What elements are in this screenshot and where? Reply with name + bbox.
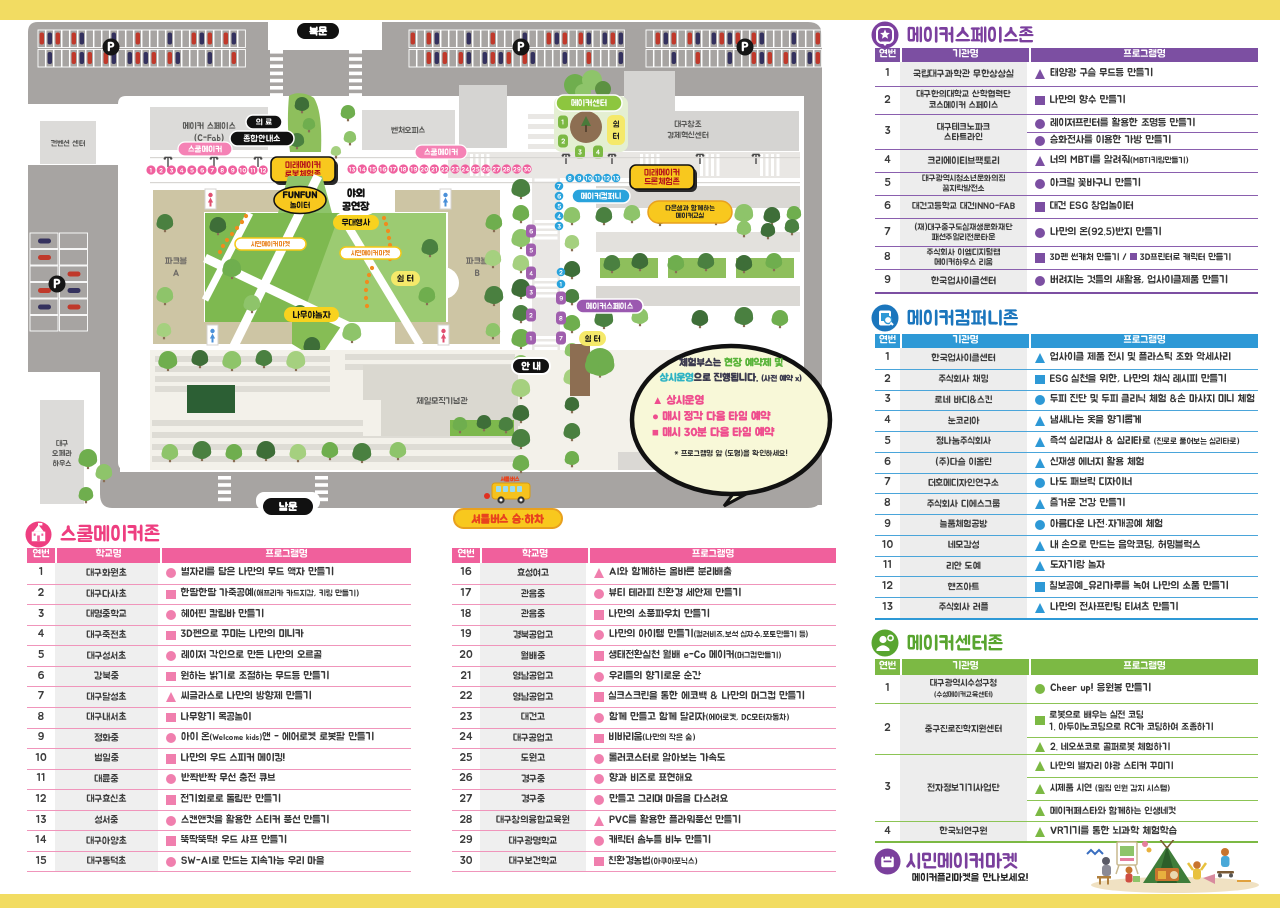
- svg-text:23: 23: [450, 167, 458, 173]
- svg-text:FUNFUN: FUNFUN: [283, 190, 319, 200]
- svg-text:21: 21: [430, 167, 437, 173]
- svg-text:18: 18: [400, 166, 407, 173]
- svg-text:4: 4: [595, 150, 600, 157]
- svg-text:● 매시 정각 다음 타임 예약: ● 매시 정각 다음 타임 예약: [652, 410, 771, 423]
- svg-text:8: 8: [559, 315, 563, 322]
- svg-text:메이커교실: 메이커교실: [676, 212, 705, 220]
- svg-text:12: 12: [604, 176, 611, 182]
- svg-text:2: 2: [528, 313, 533, 319]
- svg-text:다은샘과 함께하는: 다은샘과 함께하는: [664, 204, 715, 213]
- svg-text:메이커 스페이스: 메이커 스페이스: [182, 121, 236, 131]
- svg-text:14: 14: [359, 167, 366, 173]
- svg-text:시민메이커마켓: 시민메이커마켓: [251, 241, 291, 249]
- svg-text:종합안내소: 종합안내소: [244, 134, 281, 144]
- svg-text:12: 12: [260, 168, 267, 174]
- svg-text:벤처오피스: 벤처오피스: [391, 125, 426, 135]
- svg-text:공연장: 공연장: [341, 201, 370, 213]
- svg-text:10: 10: [585, 176, 592, 182]
- svg-text:하우스: 하우스: [51, 459, 71, 468]
- svg-text:체험부스는 현장 예약제 및: 체험부스는 현장 예약제 및: [679, 357, 783, 369]
- svg-text:1: 1: [561, 120, 565, 127]
- svg-text:2: 2: [558, 270, 563, 276]
- svg-text:야외: 야외: [347, 187, 366, 200]
- svg-text:시민메이커마켓: 시민메이커마켓: [351, 250, 391, 258]
- svg-text:17: 17: [390, 167, 397, 173]
- svg-text:27: 27: [491, 167, 500, 173]
- svg-text:3: 3: [169, 168, 174, 174]
- svg-text:쉼 터: 쉼 터: [397, 274, 415, 284]
- svg-text:10: 10: [239, 168, 246, 174]
- svg-text:22: 22: [440, 167, 449, 173]
- svg-text:대구창조: 대구창조: [673, 120, 702, 129]
- svg-text:P: P: [741, 41, 749, 54]
- svg-text:8: 8: [221, 167, 225, 174]
- svg-text:P: P: [53, 278, 61, 291]
- svg-text:스쿨메이커: 스쿨메이커: [424, 148, 458, 157]
- svg-text:경제혁신센터: 경제혁신센터: [667, 131, 709, 140]
- svg-text:쉼: 쉼: [613, 120, 620, 129]
- svg-text:2: 2: [158, 168, 163, 174]
- svg-text:5: 5: [529, 248, 533, 254]
- svg-text:나무야놀자: 나무야놀자: [292, 310, 331, 320]
- svg-text:3: 3: [578, 150, 582, 157]
- svg-text:11: 11: [595, 176, 600, 182]
- svg-text:메이커스페이스: 메이커스페이스: [585, 302, 634, 311]
- svg-text:7: 7: [559, 336, 563, 342]
- svg-text:안 내: 안 내: [521, 361, 541, 372]
- svg-text:7: 7: [210, 168, 214, 174]
- svg-text:20: 20: [419, 167, 428, 173]
- svg-text:1: 1: [560, 282, 563, 288]
- svg-text:쉼 터: 쉼 터: [584, 335, 600, 344]
- svg-text:24: 24: [460, 167, 469, 173]
- svg-text:15: 15: [369, 167, 376, 173]
- svg-text:A: A: [173, 269, 179, 278]
- svg-text:4: 4: [180, 168, 184, 174]
- svg-text:놀이터: 놀이터: [290, 201, 310, 210]
- svg-text:▲ 상시운영: ▲ 상시운영: [652, 394, 704, 407]
- svg-text:13: 13: [349, 167, 355, 173]
- svg-text:3: 3: [528, 290, 533, 296]
- svg-text:1: 1: [150, 168, 153, 174]
- svg-text:16: 16: [380, 167, 388, 173]
- svg-text:4: 4: [557, 214, 561, 220]
- svg-text:25: 25: [471, 167, 480, 173]
- svg-text:북문: 북문: [309, 25, 328, 38]
- svg-text:컨벤션 센터: 컨벤션 센터: [51, 139, 86, 148]
- svg-text:제일모직기념관: 제일모직기념관: [416, 396, 468, 406]
- svg-text:5: 5: [557, 204, 561, 210]
- svg-text:7: 7: [557, 184, 561, 190]
- svg-text:29: 29: [512, 167, 522, 173]
- svg-text:파크블: 파크블: [164, 256, 187, 266]
- svg-text:5: 5: [190, 168, 194, 174]
- svg-text:■ 매시 30분 다음 타임 예약: ■ 매시 30분 다음 타임 예약: [652, 426, 774, 439]
- svg-text:8: 8: [568, 175, 572, 182]
- svg-text:터: 터: [613, 132, 620, 141]
- svg-text:무대행사: 무대행사: [342, 218, 372, 228]
- svg-text:셔틀버스 승·하차: 셔틀버스 승·하차: [471, 513, 544, 526]
- svg-text:1: 1: [530, 336, 533, 342]
- svg-text:오페라: 오페라: [52, 449, 72, 458]
- svg-text:메이커센터: 메이커센터: [570, 98, 608, 108]
- svg-text:* 프로그램명 앞 (도형)을 확인하세요!: * 프로그램명 앞 (도형)을 확인하세요!: [674, 449, 788, 458]
- svg-text:드론체험존: 드론체험존: [644, 176, 680, 186]
- svg-text:메이커컴퍼니: 메이커컴퍼니: [580, 192, 622, 201]
- svg-text:4: 4: [529, 271, 533, 277]
- svg-text:28: 28: [502, 166, 511, 173]
- svg-text:P: P: [517, 41, 525, 54]
- svg-text:미래메이커: 미래메이커: [643, 167, 680, 177]
- svg-text:11: 11: [250, 168, 255, 174]
- svg-text:셔틀버스: 셔틀버스: [499, 475, 519, 483]
- svg-text:미래메이커: 미래메이커: [284, 160, 321, 170]
- svg-text:13: 13: [613, 176, 619, 182]
- svg-text:대구: 대구: [55, 439, 69, 448]
- svg-text:3: 3: [556, 224, 561, 230]
- svg-text:의 료: 의 료: [256, 118, 273, 127]
- svg-text:남문: 남문: [279, 501, 298, 513]
- svg-text:P: P: [107, 41, 115, 54]
- svg-text:26: 26: [481, 167, 491, 173]
- svg-text:30: 30: [522, 167, 531, 173]
- svg-text:스쿨메이커: 스쿨메이커: [188, 145, 222, 154]
